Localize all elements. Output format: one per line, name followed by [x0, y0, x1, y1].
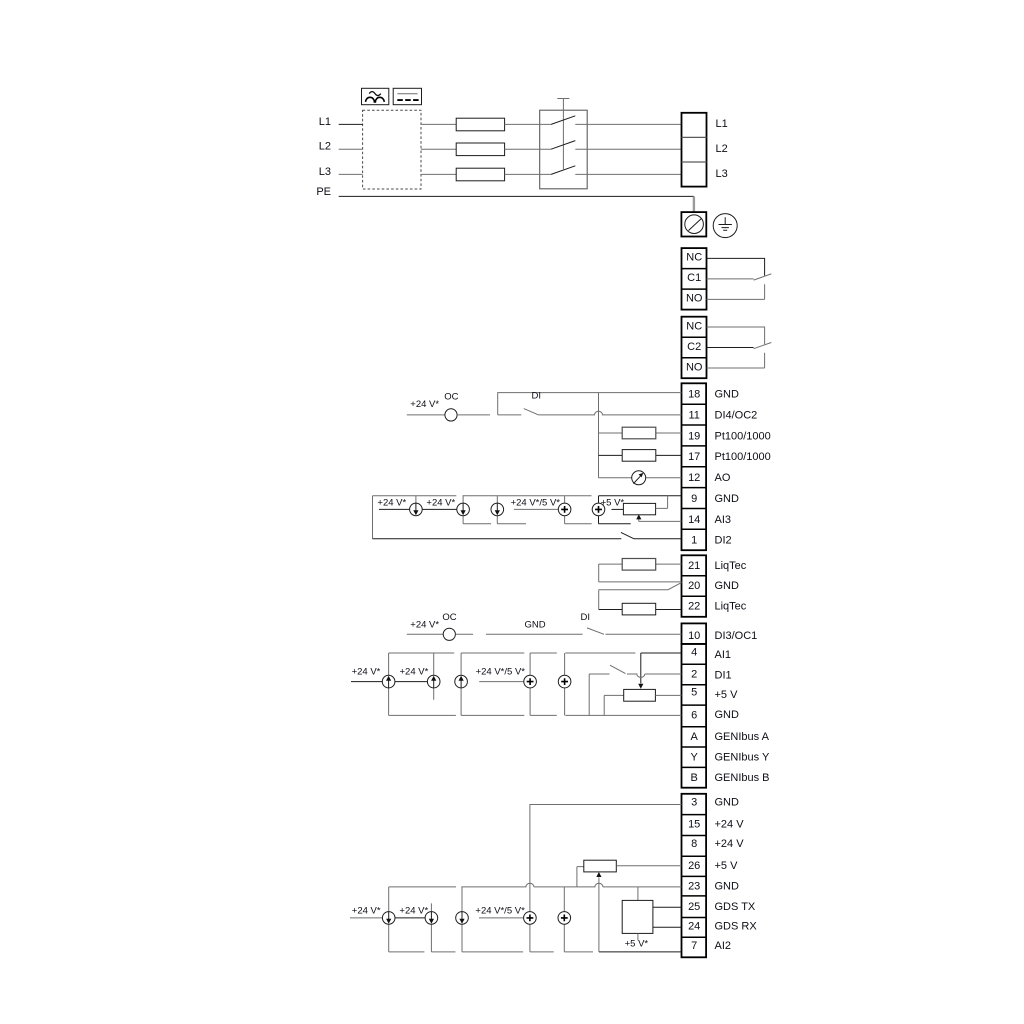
svg-text:24: 24 [688, 921, 700, 933]
svg-text:NC: NC [686, 252, 702, 264]
svg-text:GND: GND [715, 580, 740, 592]
svg-text:+5 V*: +5 V* [601, 498, 625, 509]
svg-text:DI4/OC2: DI4/OC2 [715, 410, 758, 422]
svg-text:11: 11 [688, 410, 699, 422]
svg-text:+24 V*: +24 V* [400, 666, 429, 677]
svg-text:L2: L2 [716, 143, 728, 155]
svg-text:GND: GND [715, 797, 740, 809]
svg-text:GND: GND [715, 881, 740, 893]
svg-text:Pt100/1000: Pt100/1000 [715, 451, 771, 463]
svg-text:+24 V*: +24 V* [399, 905, 428, 916]
svg-text:2: 2 [691, 669, 697, 681]
svg-text:DI1: DI1 [715, 670, 732, 682]
svg-text:5: 5 [691, 686, 697, 698]
svg-text:GND: GND [715, 389, 740, 401]
svg-text:1: 1 [691, 535, 697, 547]
svg-text:OC: OC [442, 612, 456, 623]
svg-text:NC: NC [686, 320, 702, 332]
svg-text:22: 22 [688, 601, 700, 613]
svg-text:LiqTec: LiqTec [715, 601, 747, 613]
svg-text:NO: NO [686, 293, 703, 305]
svg-text:+24 V*/5 V*: +24 V*/5 V* [476, 666, 526, 677]
svg-text:+24 V: +24 V [715, 819, 745, 831]
svg-text:AI3: AI3 [715, 514, 732, 526]
svg-text:B: B [691, 772, 698, 784]
svg-text:LiqTec: LiqTec [715, 560, 747, 572]
svg-text:17: 17 [688, 451, 700, 463]
svg-text:23: 23 [688, 881, 700, 893]
svg-text:NO: NO [686, 361, 703, 373]
svg-text:+24 V*: +24 V* [426, 498, 455, 509]
svg-text:DI: DI [581, 612, 591, 623]
svg-text:L3: L3 [319, 166, 331, 178]
svg-text:A: A [691, 731, 699, 743]
svg-text:C2: C2 [687, 341, 701, 353]
svg-text:GND: GND [715, 493, 740, 505]
svg-text:+24 V*/5 V*: +24 V*/5 V* [475, 905, 525, 916]
svg-text:6: 6 [691, 710, 697, 722]
svg-text:25: 25 [688, 901, 700, 913]
svg-text:GENIbus A: GENIbus A [715, 731, 770, 743]
svg-text:12: 12 [688, 472, 700, 484]
svg-text:L1: L1 [319, 116, 331, 128]
svg-text:PE: PE [316, 186, 331, 198]
svg-text:14: 14 [688, 514, 700, 526]
svg-text:+24 V: +24 V [715, 838, 745, 850]
svg-text:9: 9 [691, 493, 697, 505]
svg-text:C1: C1 [687, 272, 701, 284]
svg-text:+24 V*/5 V*: +24 V*/5 V* [511, 498, 561, 509]
svg-text:GND: GND [715, 709, 740, 721]
svg-text:GDS TX: GDS TX [715, 901, 756, 913]
svg-text:4: 4 [691, 647, 697, 659]
svg-text:AO: AO [715, 472, 731, 484]
svg-text:GDS RX: GDS RX [715, 921, 758, 933]
svg-text:GENIbus B: GENIbus B [715, 772, 770, 784]
svg-text:26: 26 [688, 860, 700, 872]
svg-text:L3: L3 [716, 168, 728, 180]
svg-text:+5 V: +5 V [715, 860, 739, 872]
svg-text:+5 V*: +5 V* [625, 938, 649, 949]
svg-text:7: 7 [691, 940, 697, 952]
svg-text:Pt100/1000: Pt100/1000 [715, 430, 771, 442]
svg-text:+24 V*: +24 V* [352, 666, 381, 677]
svg-text:+24 V*: +24 V* [352, 905, 381, 916]
svg-text:3: 3 [691, 797, 697, 809]
svg-text:18: 18 [688, 389, 700, 401]
svg-text:DI: DI [532, 391, 542, 402]
svg-text:+24 V*: +24 V* [410, 399, 439, 410]
svg-text:OC: OC [444, 392, 458, 403]
svg-text:20: 20 [688, 580, 700, 592]
svg-text:19: 19 [688, 430, 700, 442]
svg-text:Y: Y [691, 752, 699, 764]
svg-text:DI3/OC1: DI3/OC1 [715, 630, 758, 642]
svg-text:GENIbus Y: GENIbus Y [715, 752, 770, 764]
svg-text:DI2: DI2 [715, 535, 732, 547]
svg-text:L1: L1 [716, 118, 728, 130]
svg-text:8: 8 [691, 838, 697, 850]
svg-text:AI1: AI1 [715, 649, 732, 661]
svg-text:+24 V*: +24 V* [410, 620, 439, 631]
svg-text:21: 21 [688, 560, 700, 572]
svg-text:15: 15 [688, 819, 700, 831]
svg-text:AI2: AI2 [715, 940, 732, 952]
svg-text:L2: L2 [319, 141, 331, 153]
svg-text:+5 V: +5 V [715, 689, 739, 701]
svg-text:+24 V*: +24 V* [377, 498, 406, 509]
svg-text:10: 10 [688, 630, 700, 642]
svg-text:GND: GND [525, 620, 546, 631]
